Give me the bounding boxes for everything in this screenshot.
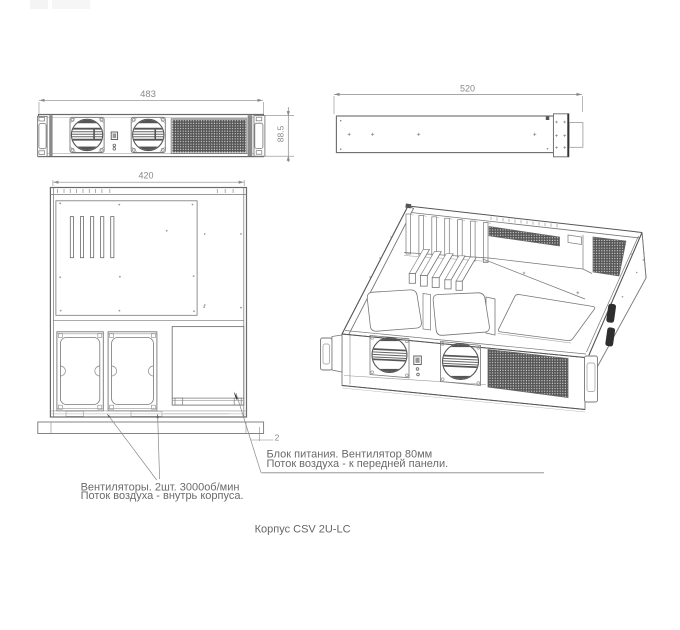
svg-text:520: 520 xyxy=(460,84,475,94)
svg-text:Поток воздуха - внутрь корпуса: Поток воздуха - внутрь корпуса. xyxy=(81,490,244,502)
svg-text:483: 483 xyxy=(140,89,156,100)
svg-text:88.5: 88.5 xyxy=(276,125,286,142)
svg-text:Корпус CSV 2U-LC: Корпус CSV 2U-LC xyxy=(255,524,351,536)
svg-text:2: 2 xyxy=(275,433,280,443)
svg-text:420: 420 xyxy=(138,171,153,181)
svg-text:Поток воздуха - к передней пан: Поток воздуха - к передней панели. xyxy=(267,458,449,470)
